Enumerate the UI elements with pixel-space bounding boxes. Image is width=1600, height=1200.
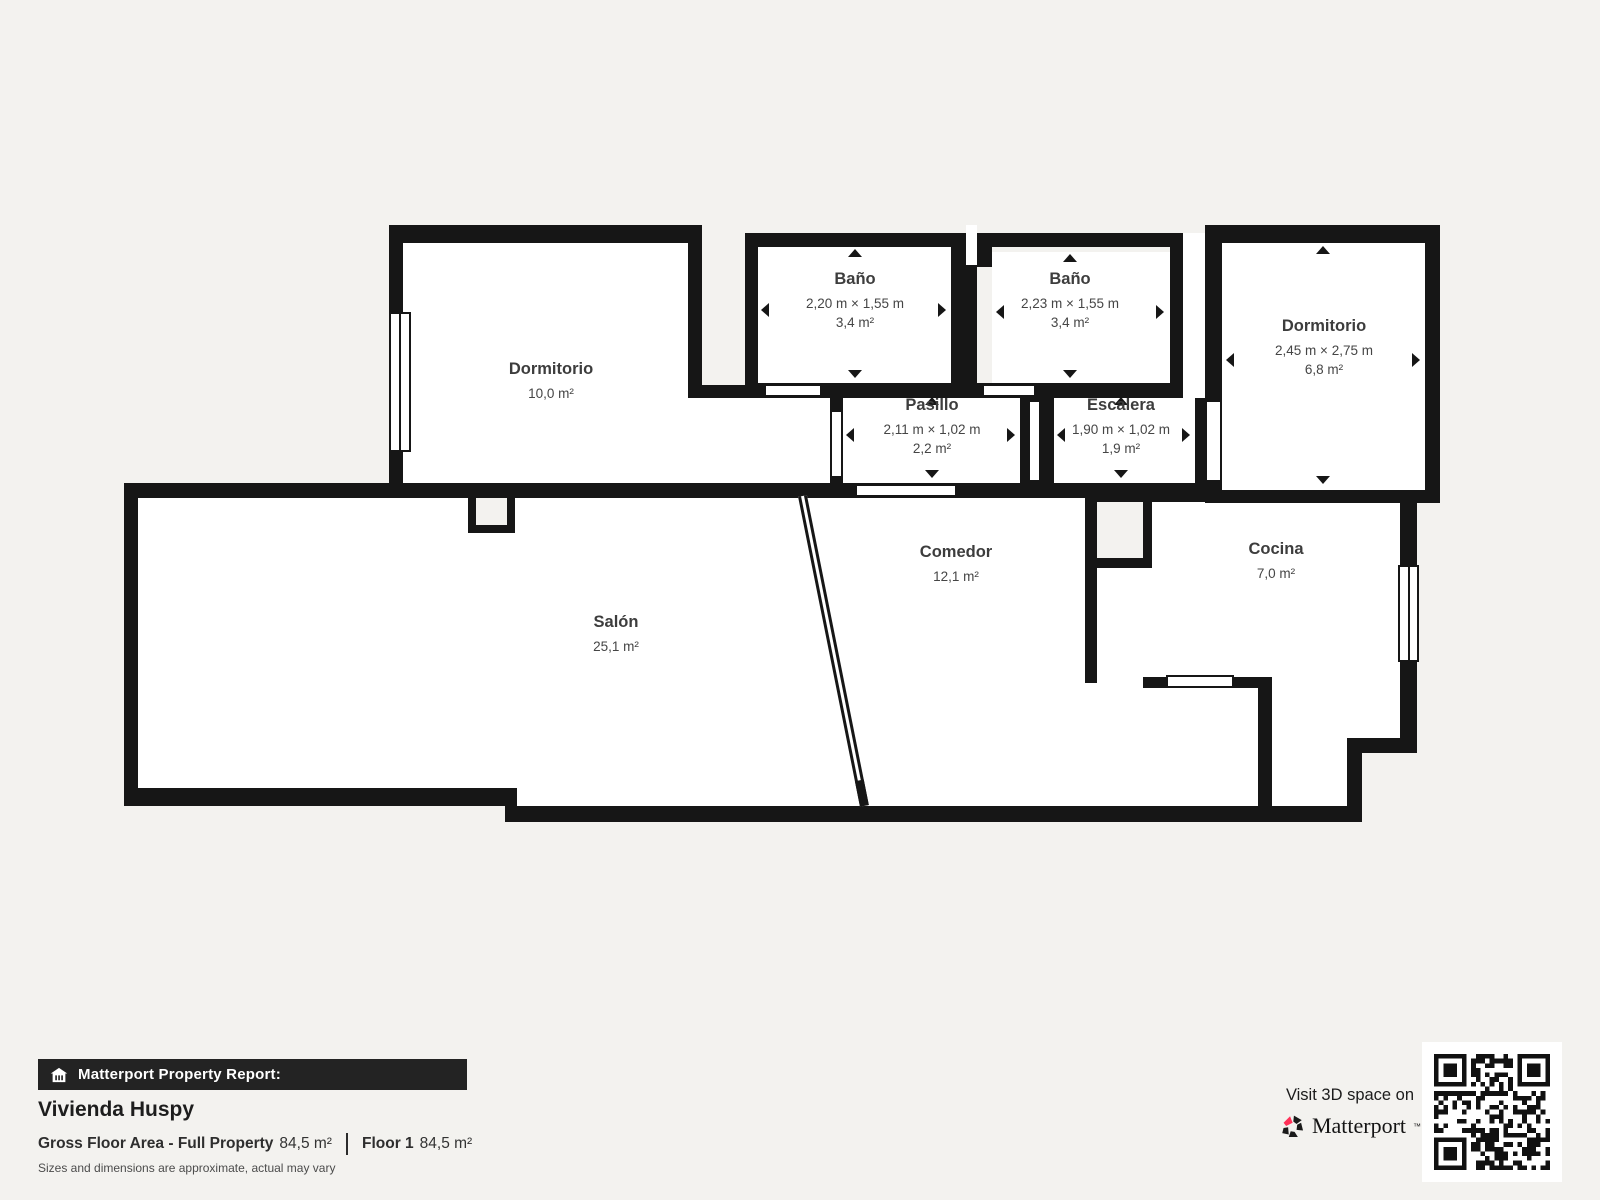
room-label-salon: Salón 25,1 m² [593,613,639,656]
room-area: 10,0 m² [509,384,593,403]
wall-segment [389,225,403,315]
room-floor [1097,677,1258,806]
wall-segment [1425,225,1440,503]
room-label-comedor: Comedor 12,1 m² [920,543,992,586]
void-shaft [1097,502,1143,558]
wall-segment [124,483,138,806]
room-name: Salón [593,613,639,632]
window-divider [1408,567,1410,660]
room-dimensions: 2,23 m × 1,55 m [1021,294,1119,313]
dimension-arrow-up [1063,254,1077,262]
door-opening [857,486,955,495]
door-opening [832,412,841,476]
wall-segment [1097,558,1152,568]
dimension-arrow-left [846,428,854,442]
room-floor [1272,677,1400,738]
room-area: 12,1 m² [920,567,992,586]
trademark-mark: ™ [1413,1122,1421,1131]
floor-area-summary: Gross Floor Area - Full Property 84,5 m²… [38,1133,472,1155]
room-label-bano-1: Baño 2,20 m × 1,55 m 3,4 m² [806,270,904,332]
dimension-arrow-down [1114,470,1128,478]
dimension-arrow-up [848,249,862,257]
dimension-arrow-left [1057,428,1065,442]
room-name: Dormitorio [509,360,593,379]
dimension-arrow-down [925,470,939,478]
wall-segment [389,225,690,243]
house-icon [50,1066,68,1084]
window [1166,675,1234,688]
report-header-label: Matterport Property Report: [78,1066,281,1083]
room-label-pasillo: Pasillo 2,11 m × 1,02 m 2,2 m² [884,396,981,458]
room-name: Escalera [1072,396,1170,415]
wall-segment [745,233,966,247]
room-label-dormitorio-right: Dormitorio 2,45 m × 2,75 m 6,8 m² [1275,317,1373,379]
dimension-arrow-right [1182,428,1190,442]
visit-3d-text: Visit 3D space on [1250,1086,1450,1105]
window [1398,565,1419,662]
wall-segment [745,233,758,398]
room-dimensions: 2,11 m × 1,02 m [884,420,981,439]
dimension-arrow-left [761,303,769,317]
dimension-arrow-down [1063,370,1077,378]
room-dimensions: 2,20 m × 1,55 m [806,294,904,313]
room-area: 25,1 m² [593,637,639,656]
room-name: Dormitorio [1275,317,1373,336]
dimension-arrow-down [1316,476,1330,484]
matterport-promo: Visit 3D space on Matterport ™ [1250,1086,1450,1139]
room-label-bano-2: Baño 2,23 m × 1,55 m 3,4 m² [1021,270,1119,332]
dimension-arrow-right [1007,428,1015,442]
qr-code [1434,1054,1550,1170]
wall-segment [977,233,1183,247]
door-opening [766,386,820,395]
wall-segment [1095,490,1417,502]
room-label-escalera: Escalera 1,90 m × 1,02 m 1,9 m² [1072,396,1170,458]
room-area: 7,0 m² [1248,564,1303,583]
dimension-arrow-left [1226,353,1234,367]
matterport-brand-row: Matterport ™ [1250,1113,1450,1139]
dimension-arrow-right [1412,353,1420,367]
wall-segment [124,483,1205,498]
floor-value: 84,5 m² [420,1135,473,1153]
report-header-bar: Matterport Property Report: [38,1059,467,1090]
wall-segment [1085,498,1097,683]
floor-plan-page: Dormitorio 10,0 m² Baño 2,20 m × 1,55 m … [0,0,1600,1200]
room-floor [702,398,832,483]
matterport-wordmark: Matterport [1312,1113,1406,1139]
room-area: 6,8 m² [1275,360,1373,379]
room-area: 1,9 m² [1072,439,1170,458]
door-opening [1207,402,1220,480]
room-name: Cocina [1248,540,1303,559]
gfa-value: 84,5 m² [279,1135,332,1153]
room-dimensions: 1,90 m × 1,02 m [1072,420,1170,439]
room-area: 3,4 m² [1021,313,1119,332]
wall-segment [1205,225,1440,243]
room-floor [505,788,1362,806]
gfa-label: Gross Floor Area - Full Property [38,1135,273,1153]
room-area: 2,2 m² [884,439,981,458]
window-divider [399,314,401,450]
wall-slit [966,225,977,265]
matterport-logo-icon [1279,1113,1305,1139]
disclaimer-text: Sizes and dimensions are approximate, ac… [38,1161,335,1175]
door-opening [984,386,1034,395]
room-label-cocina: Cocina 7,0 m² [1248,540,1303,583]
wall-segment [505,806,1362,822]
room-name: Comedor [920,543,992,562]
dimension-arrow-up [1316,246,1330,254]
room-floor [138,498,805,788]
room-name: Pasillo [884,396,981,415]
wall-segment [977,247,992,267]
room-area: 3,4 m² [806,313,904,332]
wall-slit [1030,402,1039,480]
room-name: Baño [1021,270,1119,289]
dimension-arrow-down [848,370,862,378]
void-shaft [476,498,507,525]
wall-segment [1170,233,1183,398]
wall-segment [1258,677,1272,822]
floor-label: Floor 1 [362,1135,414,1153]
room-dimensions: 2,45 m × 2,75 m [1275,341,1373,360]
room-label-dormitorio-left: Dormitorio 10,0 m² [509,360,593,403]
void-shaft [702,225,745,385]
dimension-arrow-right [938,303,946,317]
room-name: Baño [806,270,904,289]
qr-code-panel [1422,1042,1562,1182]
dimension-arrow-right [1156,305,1164,319]
wall-segment [124,788,517,806]
property-name: Vivienda Huspy [38,1098,194,1122]
window [389,312,411,452]
dimension-arrow-left [996,305,1004,319]
divider [346,1133,348,1155]
